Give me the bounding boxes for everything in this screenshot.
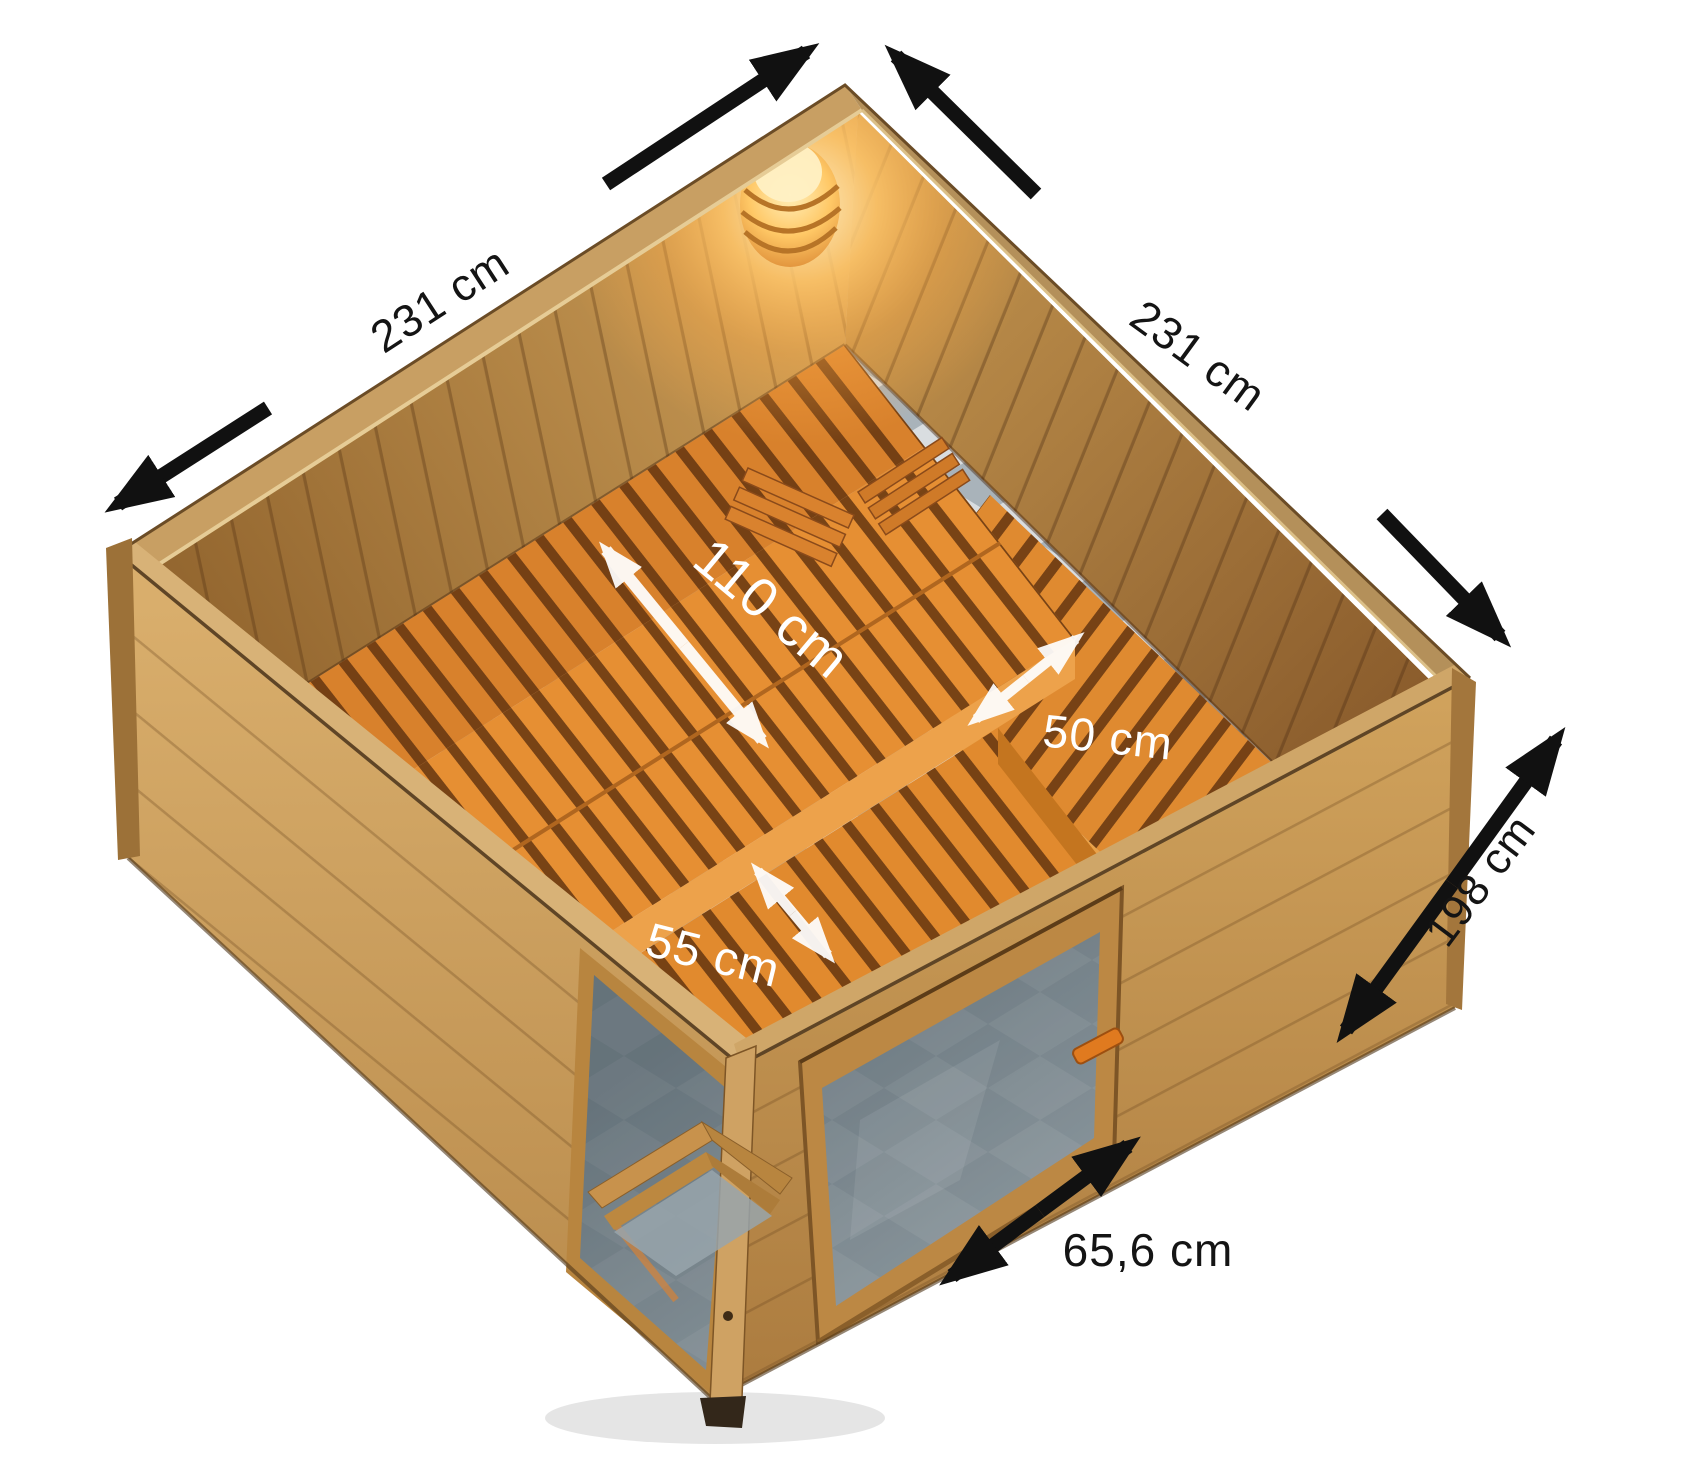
dim-label-door-width: 65,6 cm (1063, 1223, 1234, 1277)
sauna-dimension-diagram: 231 cm 231 cm 198 cm 65,6 cm 110 cm 50 c… (0, 0, 1696, 1480)
sauna-illustration (0, 0, 1696, 1480)
cabin-foot (700, 1396, 746, 1428)
